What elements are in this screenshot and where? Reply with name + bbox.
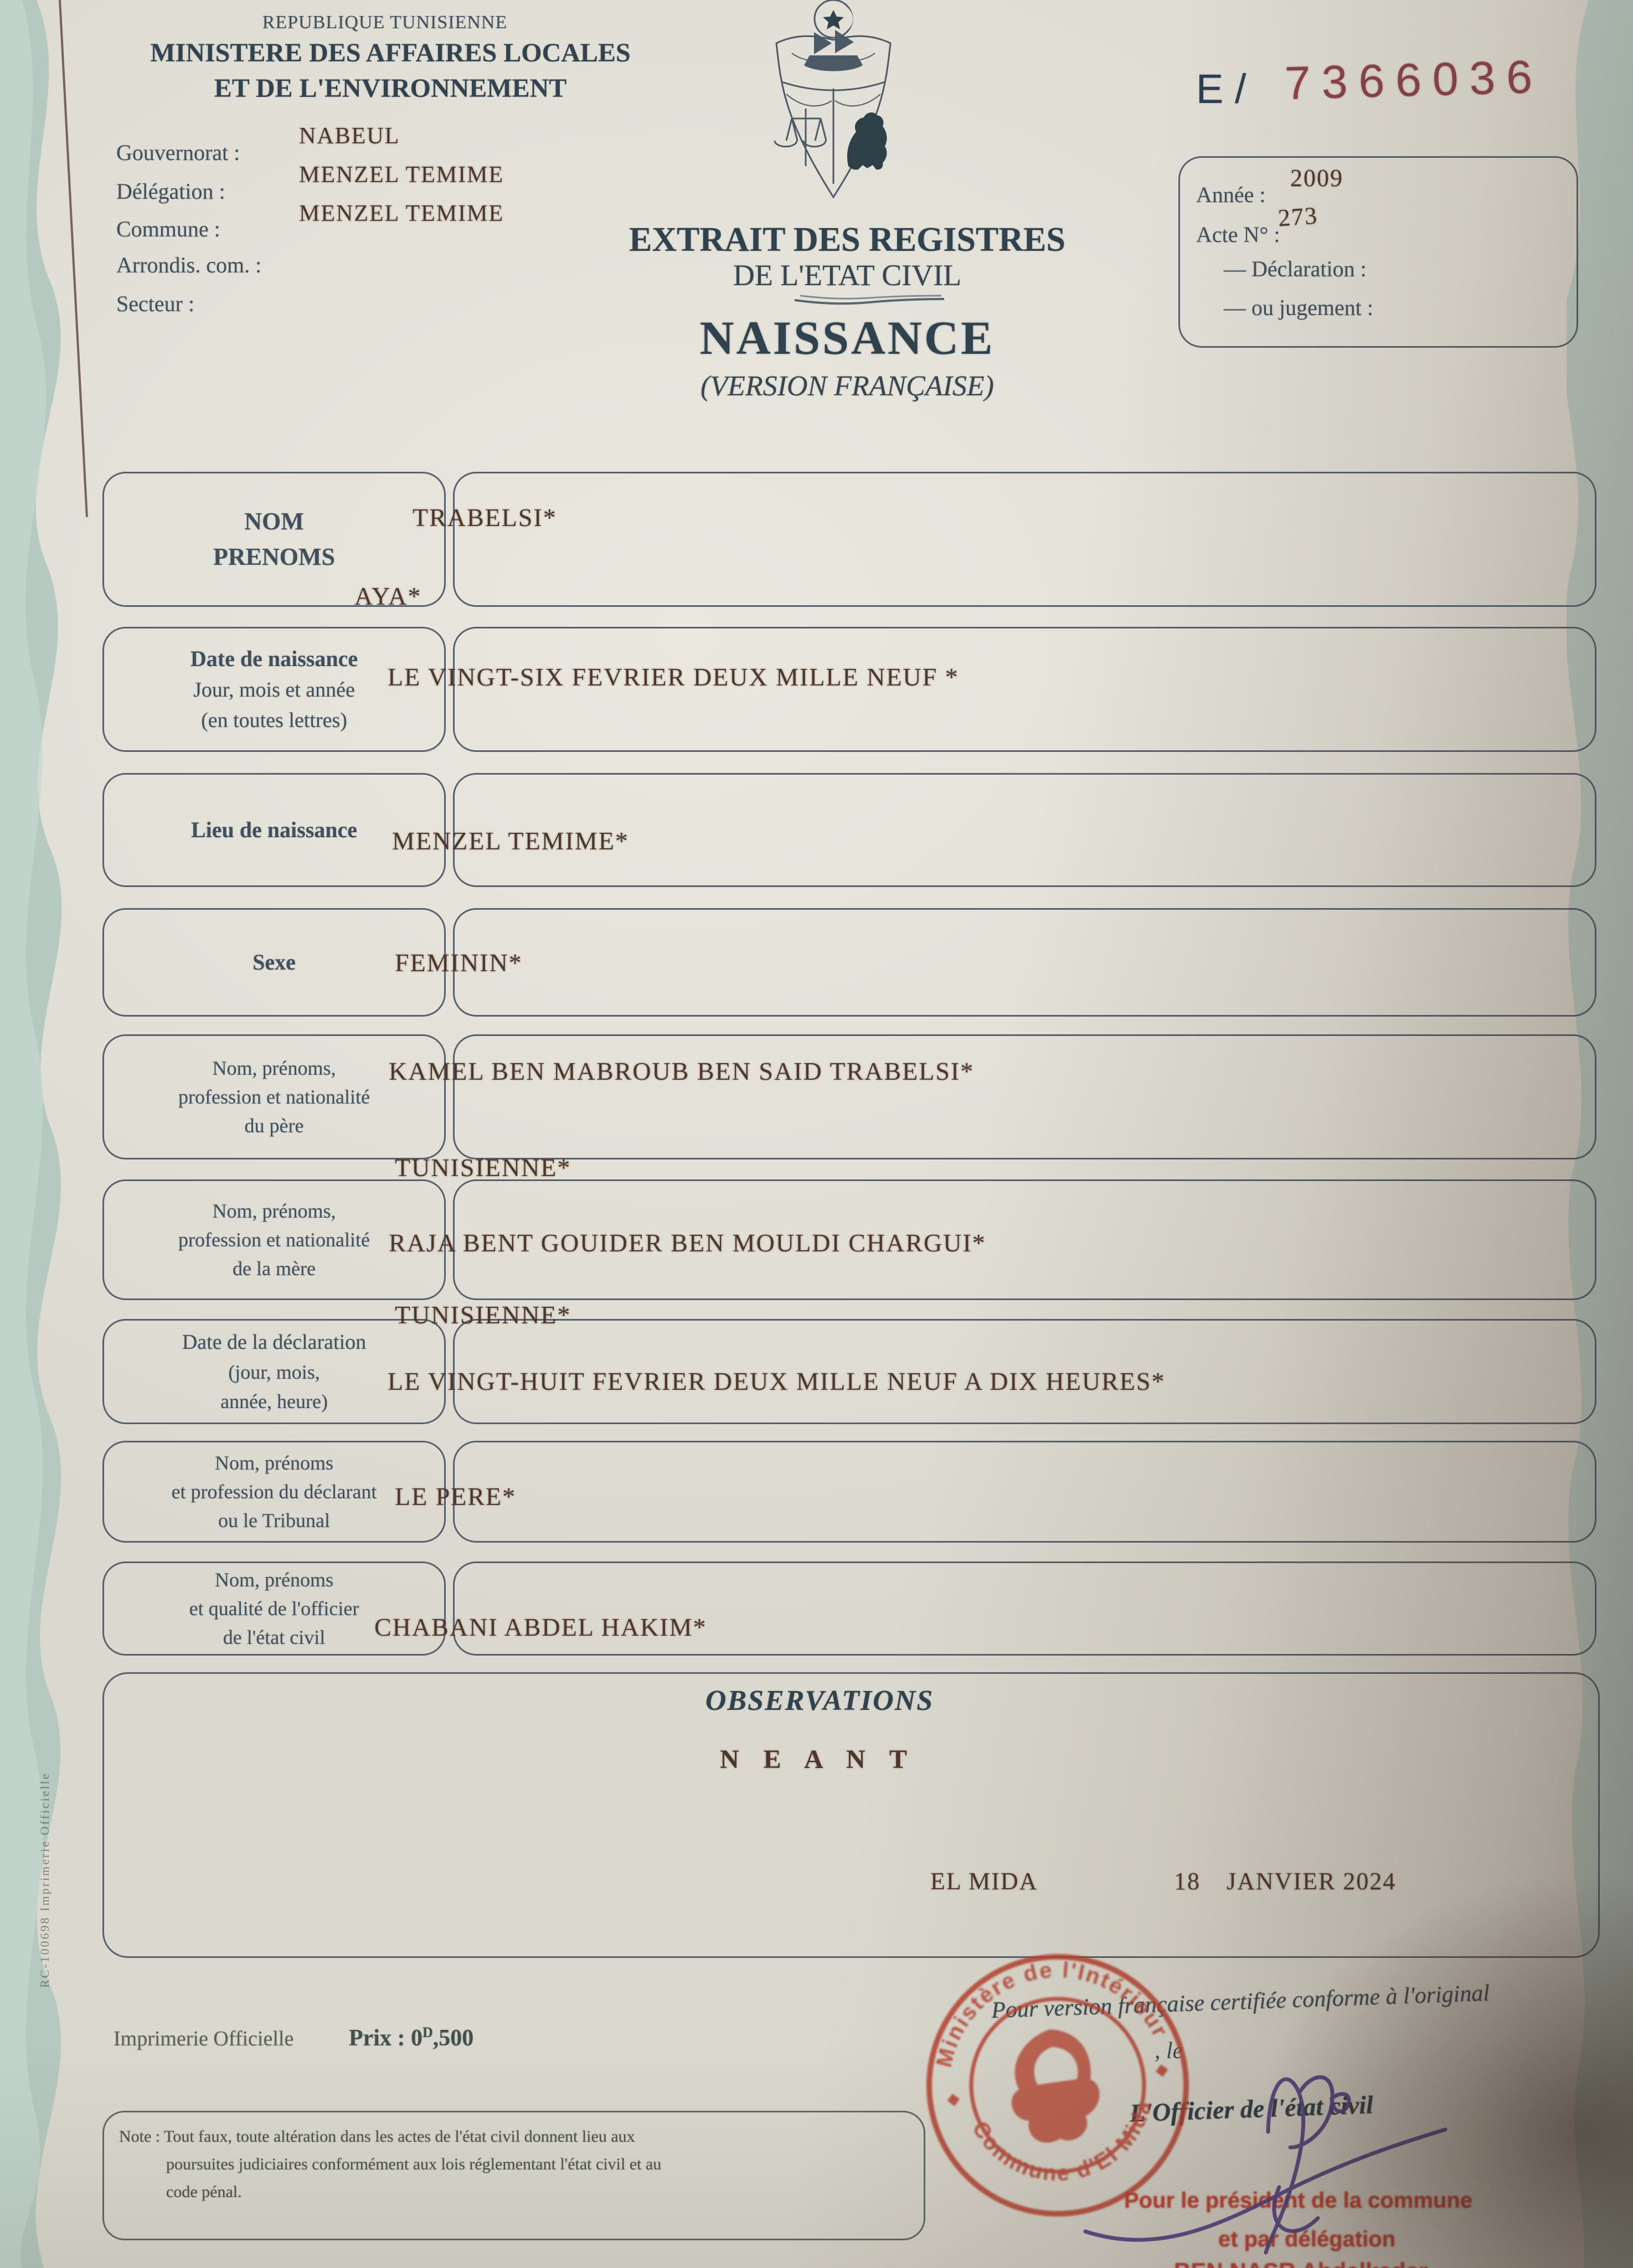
observations-value: N E A N T <box>720 1744 916 1775</box>
field-label: du père <box>245 1111 304 1140</box>
acte-number-box <box>1178 156 1578 348</box>
price-sup: D <box>423 2024 433 2040</box>
row-label-box: Nom, prénoms et profession du déclarant … <box>102 1441 446 1543</box>
commune-value: MENZEL TEMIME <box>299 200 504 227</box>
field-label: Nom, prénoms, <box>213 1054 336 1083</box>
field-value: CHABANI ABDEL HAKIM* <box>374 1612 707 1642</box>
field-label: NOM <box>244 504 304 539</box>
printer-reference-vertical: RC-100698 Imprimerie Officielle <box>38 1733 52 1988</box>
field-value: FEMININ* <box>395 948 523 977</box>
price: Prix : 0D,500 <box>349 2024 473 2051</box>
printer-name: Imprimerie Officielle <box>114 2027 293 2051</box>
field-label: Date de naissance <box>190 643 358 675</box>
field-label: Nom, prénoms, <box>213 1197 336 1225</box>
field-value: TUNISIENNE* <box>395 1300 571 1329</box>
gouvernorat-value: NABEUL <box>299 123 400 150</box>
row-label-box: Sexe <box>102 908 446 1017</box>
ministry-title-line1: MINISTERE DES AFFAIRES LOCALES <box>100 38 681 68</box>
field-value: MENZEL TEMIME* <box>392 826 629 855</box>
field-label: de la mère <box>233 1254 316 1283</box>
price-suffix: ,500 <box>433 2025 474 2051</box>
field-label: Date de la déclaration <box>182 1327 366 1358</box>
row-value-box <box>453 1441 1596 1543</box>
field-label: PRENOMS <box>213 539 335 575</box>
field-label: Nom, prénoms <box>215 1449 333 1477</box>
ministry-title-line2: ET DE L'ENVIRONNEMENT <box>100 73 681 104</box>
commune-label: Commune : <box>116 216 220 242</box>
gouvernorat-label: Gouvernorat : <box>116 140 240 166</box>
legal-note-box <box>102 2111 925 2240</box>
field-value: LE PERE* <box>395 1482 516 1511</box>
delegation-label: Délégation : <box>116 178 225 204</box>
observations-month-year: JANVIER 2024 <box>1227 1867 1396 1895</box>
field-label: de l'état civil <box>223 1623 325 1652</box>
arrondissement-label: Arrondis. com. : <box>116 252 261 278</box>
annee-value: 2009 <box>1290 164 1343 192</box>
document-title-line1: EXTRAIT DES REGISTRES <box>570 220 1124 260</box>
document-title-line2: DE L'ETAT CIVIL <box>570 258 1124 292</box>
field-label: ou le Tribunal <box>218 1506 330 1535</box>
field-label: profession et nationalité <box>178 1083 370 1111</box>
field-label: Lieu de naissance <box>191 814 357 846</box>
republic-title: REPUBLIQUE TUNISIENNE <box>205 12 565 33</box>
field-value: TRABELSI* <box>413 503 557 532</box>
row-value-box <box>453 1034 1596 1159</box>
document-title-sub: (VERSION FRANÇAISE) <box>570 370 1124 403</box>
left-guilloche-border <box>0 0 111 2268</box>
price-prefix: Prix : 0 <box>349 2025 423 2051</box>
field-label: (jour, mois, <box>228 1358 320 1386</box>
tunisia-coat-of-arms <box>770 0 897 206</box>
field-label: Sexe <box>253 946 296 978</box>
field-value: LE VINGT-SIX FEVRIER DEUX MILLE NEUF * <box>388 662 959 692</box>
serial-prefix: E / <box>1196 65 1246 112</box>
observations-place: EL MIDA <box>930 1867 1038 1895</box>
officer-signature <box>1052 2049 1506 2268</box>
field-value: RAJA BENT GOUIDER BEN MOULDI CHARGUI* <box>389 1228 986 1257</box>
delegation-value: MENZEL TEMIME <box>299 162 504 188</box>
row-label-box: Nom, prénoms, profession et nationalité … <box>102 1034 446 1159</box>
acte-number-value: 273 <box>1277 202 1318 233</box>
observations-day: 18 <box>1174 1867 1201 1895</box>
field-label: profession et nationalité <box>178 1225 370 1254</box>
field-label: année, heure) <box>220 1387 328 1416</box>
field-value: TUNISIENNE* <box>395 1153 571 1182</box>
secteur-label: Secteur : <box>116 291 194 317</box>
field-label: et profession du déclarant <box>172 1477 377 1506</box>
serial-number: 7366036 <box>1284 50 1544 110</box>
field-label: Nom, prénoms <box>215 1565 333 1594</box>
field-value: LE VINGT-HUIT FEVRIER DEUX MILLE NEUF A … <box>388 1367 1165 1396</box>
row-value-box <box>453 908 1596 1017</box>
field-value: AYA* <box>354 581 421 611</box>
row-value-box <box>453 472 1596 607</box>
field-label: (en toutes lettres) <box>201 705 347 736</box>
field-value: KAMEL BEN MABROUB BEN SAID TRABELSI* <box>389 1056 974 1086</box>
observations-box <box>102 1672 1600 1958</box>
document-title-main: NAISSANCE <box>570 310 1124 365</box>
birth-certificate-document: REPUBLIQUE TUNISIENNE MINISTERE DES AFFA… <box>0 0 1633 2268</box>
field-label: et qualité de l'officier <box>189 1594 359 1623</box>
title-underline <box>792 292 947 309</box>
field-label: Jour, mois et année <box>193 675 355 705</box>
